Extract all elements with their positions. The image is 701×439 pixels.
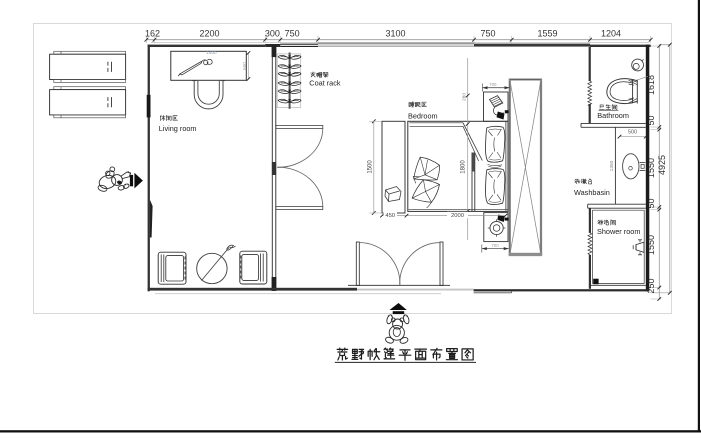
- svg-text:1800: 1800: [461, 160, 467, 174]
- svg-text:300: 300: [265, 28, 280, 38]
- svg-text:750: 750: [480, 28, 495, 38]
- svg-text:Washbasin: Washbasin: [574, 188, 610, 197]
- svg-text:750: 750: [285, 28, 300, 38]
- svg-text:4925: 4925: [657, 155, 667, 175]
- svg-text:500: 500: [628, 129, 637, 135]
- svg-text:280: 280: [461, 93, 467, 101]
- svg-text:1500: 1500: [367, 160, 373, 174]
- svg-text:700: 700: [491, 243, 499, 248]
- svg-text:2200: 2200: [199, 28, 219, 38]
- svg-text:3100: 3100: [385, 28, 405, 38]
- svg-text:Bathroom: Bathroom: [597, 111, 629, 120]
- svg-text:1559: 1559: [537, 28, 557, 38]
- svg-text:1400: 1400: [206, 50, 217, 55]
- svg-text:2000: 2000: [451, 213, 464, 219]
- svg-text:1350: 1350: [609, 160, 615, 171]
- svg-text:Shower room: Shower room: [597, 227, 640, 236]
- svg-text:Living room: Living room: [159, 124, 197, 133]
- svg-text:Bedroom: Bedroom: [408, 112, 438, 121]
- svg-text:450: 450: [385, 213, 395, 219]
- svg-text:600: 600: [242, 62, 247, 70]
- svg-text:162: 162: [145, 28, 160, 38]
- svg-text:700: 700: [489, 82, 497, 87]
- svg-text:1204: 1204: [601, 28, 621, 38]
- svg-text:Coat rack: Coat rack: [309, 79, 341, 88]
